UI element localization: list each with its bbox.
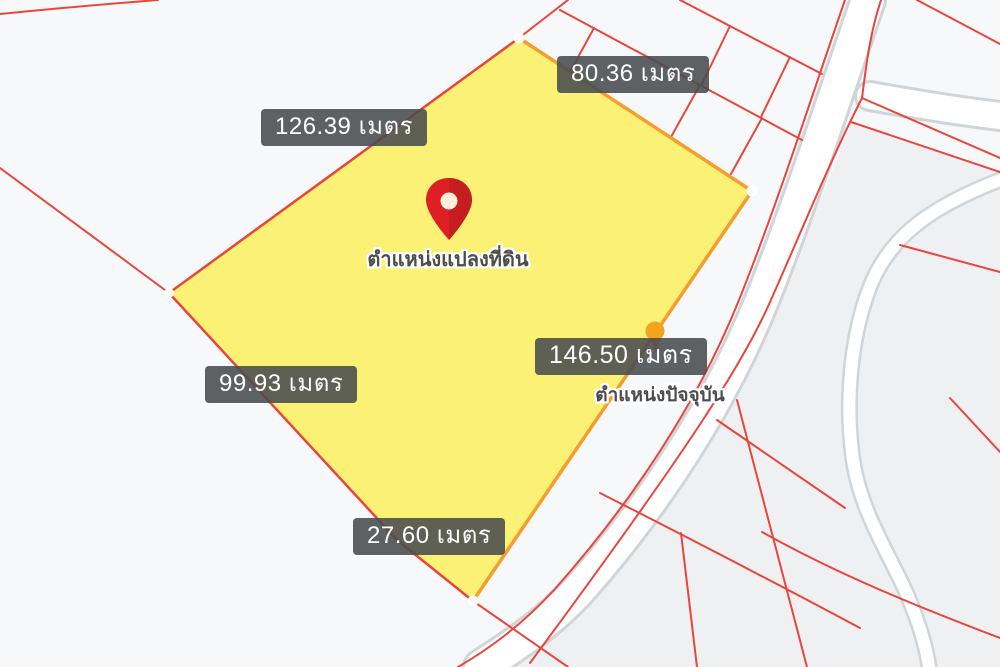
measurement-label-top-right: 80.36 เมตร	[557, 56, 709, 93]
measurement-label-bottom: 27.60 เมตร	[353, 518, 505, 555]
measurement-label-bottom-left: 99.93 เมตร	[205, 366, 357, 403]
map-canvas[interactable]: 126.39 เมตร 80.36 เมตร 146.50 เมตร 99.93…	[0, 0, 1000, 667]
measurement-label-top-left: 126.39 เมตร	[261, 109, 427, 146]
parcel-pin-caption: ตำแหน่งแปลงที่ดิน	[357, 243, 539, 275]
current-position-caption: ตำแหน่งปัจจุบัน	[586, 380, 734, 410]
pin-hole	[441, 193, 458, 210]
parcel-map-graphics	[0, 0, 1000, 667]
measurement-label-right: 146.50 เมตร	[535, 338, 707, 375]
